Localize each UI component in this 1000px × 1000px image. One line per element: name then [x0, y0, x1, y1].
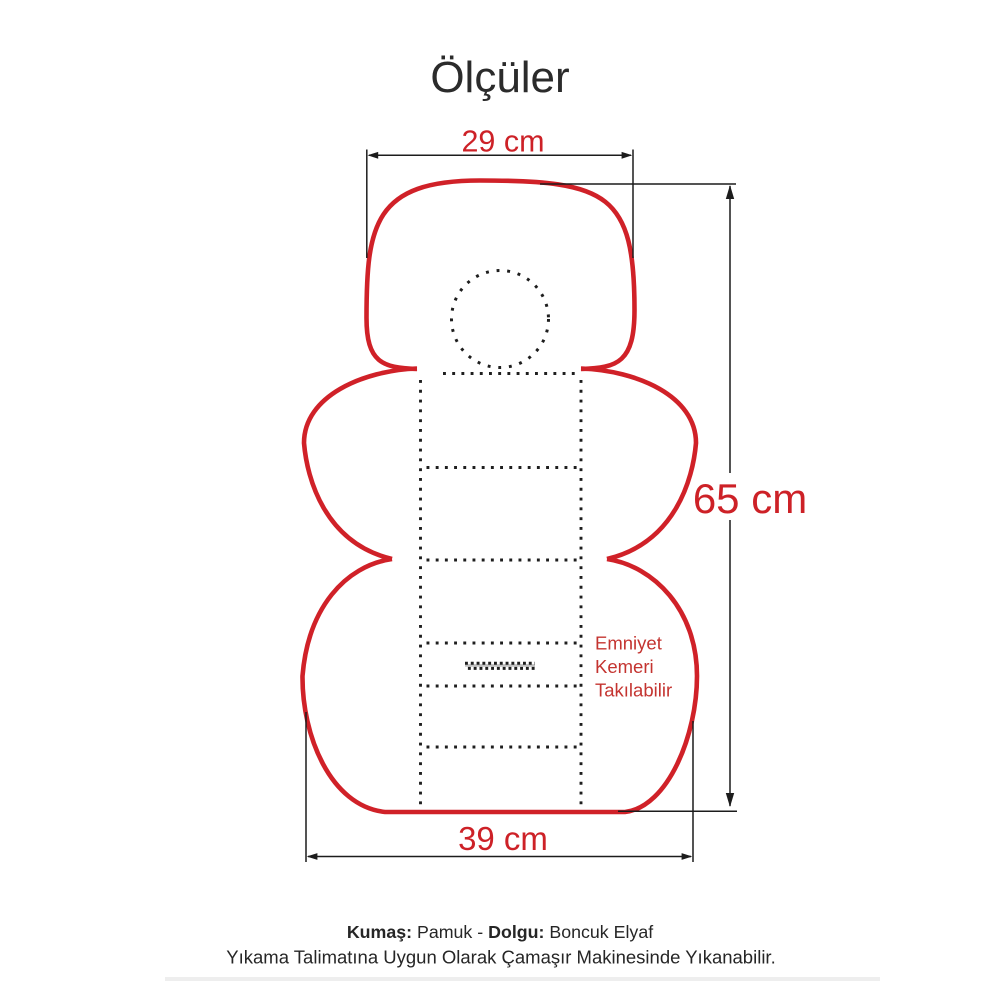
svg-text:39 cm: 39 cm: [458, 820, 548, 857]
svg-text:29 cm: 29 cm: [461, 125, 544, 159]
svg-text:Kemeri: Kemeri: [595, 656, 654, 677]
svg-text:65 cm: 65 cm: [693, 475, 807, 522]
svg-text:Takılabilir: Takılabilir: [595, 680, 672, 701]
svg-text:Emniyet: Emniyet: [595, 633, 662, 654]
svg-text:Yıkama Talimatına Uygun Olarak: Yıkama Talimatına Uygun Olarak Çamaşır M…: [226, 946, 775, 967]
svg-text:Ölçüler: Ölçüler: [430, 53, 569, 102]
svg-text:Kumaş: Pamuk - Dolgu: Boncuk E: Kumaş: Pamuk - Dolgu: Boncuk Elyaf: [347, 922, 653, 942]
